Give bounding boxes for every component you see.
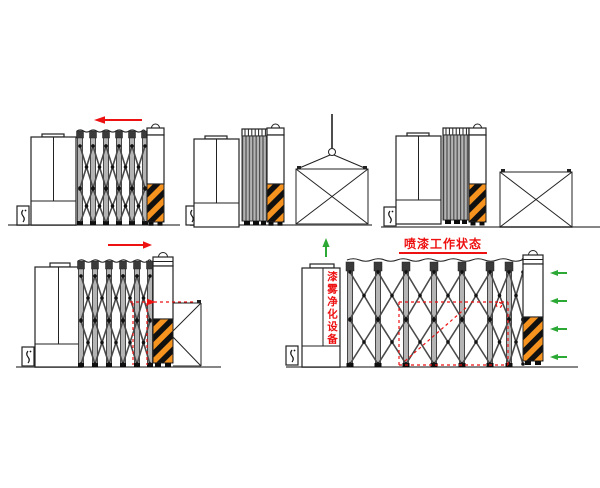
pivot-joint — [117, 187, 121, 191]
green-arrow-left-icon — [550, 326, 567, 332]
state-booth-extending — [22, 241, 201, 367]
pivot-joint — [107, 362, 111, 366]
column-cap — [430, 262, 438, 271]
pivot-joint — [91, 221, 95, 225]
pivot-joint — [78, 221, 82, 225]
pivot-joint — [86, 341, 90, 345]
pivot-joint — [107, 274, 111, 278]
pivot-joint — [142, 296, 146, 300]
pivot-joint — [143, 221, 147, 225]
pivot-joint — [514, 294, 518, 298]
column-cap — [77, 131, 84, 138]
pivot-joint — [135, 274, 139, 278]
green-arrow-left-icon — [550, 298, 567, 304]
scissor-booth-extended — [78, 260, 155, 367]
pivot-joint — [404, 270, 408, 274]
pivot-joint — [111, 165, 115, 169]
pivot-joint — [137, 165, 141, 169]
pivot-joint — [78, 144, 82, 148]
pivot-joint — [418, 340, 422, 344]
pivot-joint — [148, 319, 152, 323]
column-cap — [106, 261, 113, 269]
pivot-joint — [130, 144, 134, 148]
pivot-joint — [85, 204, 89, 208]
pivot-joint — [104, 144, 108, 148]
column-cap — [134, 261, 141, 269]
pivot-joint — [98, 165, 102, 169]
state-folded-crate-stored — [384, 124, 572, 227]
state-folded-crane-lift — [186, 114, 368, 227]
crate-corner-lug — [197, 300, 201, 303]
pivot-joint — [148, 274, 152, 278]
pivot-joint — [404, 318, 408, 322]
pivot-joint — [91, 187, 95, 191]
pivot-joint — [474, 340, 478, 344]
pivot-joint — [488, 318, 492, 322]
pivot-joint — [104, 221, 108, 225]
column-cap — [458, 262, 466, 271]
column-cap — [92, 261, 99, 269]
pivot-joint — [142, 341, 146, 345]
pivot-joint — [79, 274, 83, 278]
pivot-joint — [114, 296, 118, 300]
pivot-joint — [498, 294, 502, 298]
column-cap — [346, 262, 354, 271]
pivot-joint — [124, 204, 128, 208]
pivot-joint — [111, 204, 115, 208]
column-cap — [78, 261, 85, 269]
pivot-joint — [521, 362, 525, 366]
pivot-joint — [348, 318, 352, 322]
scissor-booth-extended — [346, 259, 525, 367]
scissor-booth-extended — [77, 130, 149, 225]
green-arrow-up-icon — [322, 238, 329, 257]
pivot-joint — [488, 270, 492, 274]
green-arrow-left-icon — [550, 270, 567, 276]
fabric-top-edge — [78, 260, 154, 263]
column-cap — [90, 131, 97, 138]
pivot-joint — [446, 340, 450, 344]
pivot-joint — [390, 294, 394, 298]
pivot-joint — [121, 274, 125, 278]
pivot-joint — [91, 144, 95, 148]
pivot-joint — [390, 340, 394, 344]
red-arrow-left-icon — [94, 116, 142, 124]
pivot-joint — [135, 319, 139, 323]
diagram-scene — [0, 0, 600, 488]
pivot-joint — [498, 340, 502, 344]
pivot-joint — [474, 294, 478, 298]
pivot-joint — [148, 362, 152, 366]
purifier-label: 漆雾净化设备 — [326, 271, 338, 346]
fabric-top-edge — [77, 130, 148, 132]
pivot-joint — [376, 270, 380, 274]
pivot-joint — [121, 319, 125, 323]
pivot-joint — [514, 340, 518, 344]
pivot-joint — [362, 340, 366, 344]
column-cap — [129, 131, 136, 138]
pivot-joint — [128, 341, 132, 345]
red-arrow-right-icon — [108, 241, 152, 249]
pivot-joint — [124, 165, 128, 169]
pivot-joint — [376, 362, 380, 366]
pivot-joint — [117, 221, 121, 225]
pivot-joint — [130, 221, 134, 225]
pivot-joint — [117, 144, 121, 148]
pivot-joint — [348, 270, 352, 274]
pivot-joint — [93, 362, 97, 366]
pivot-joint — [418, 294, 422, 298]
pivot-joint — [130, 187, 134, 191]
pivot-joint — [376, 318, 380, 322]
pivot-joint — [104, 187, 108, 191]
pivot-joint — [460, 270, 464, 274]
pivot-joint — [79, 319, 83, 323]
pivot-joint — [98, 204, 102, 208]
pivot-joint — [100, 296, 104, 300]
spray-booth-assembly-diagram: 喷漆工作状态 漆雾净化设备 — [0, 0, 600, 488]
column-cap — [120, 261, 127, 269]
pivot-joint — [100, 341, 104, 345]
pivot-joint — [348, 362, 352, 366]
fabric-top-edge — [347, 259, 524, 262]
pivot-joint — [143, 187, 147, 191]
pivot-joint — [137, 204, 141, 208]
pivot-joint — [85, 165, 89, 169]
pivot-joint — [507, 270, 511, 274]
pivot-joint — [86, 296, 90, 300]
pivot-joint — [79, 362, 83, 366]
pivot-joint — [114, 341, 118, 345]
pivot-joint — [446, 294, 450, 298]
column-cap — [402, 262, 410, 271]
state-booth-retracting — [17, 116, 164, 225]
column-cap — [505, 262, 513, 271]
working-state-title: 喷漆工作状态 — [399, 238, 487, 254]
pivot-joint — [107, 319, 111, 323]
crane-hook-icon — [297, 114, 367, 169]
column-cap — [103, 131, 110, 138]
pivot-joint — [121, 362, 125, 366]
pivot-joint — [143, 144, 147, 148]
column-cap — [374, 262, 382, 271]
column-cap — [486, 262, 494, 271]
pivot-joint — [93, 319, 97, 323]
pivot-joint — [432, 270, 436, 274]
pivot-joint — [128, 296, 132, 300]
green-arrow-left-icon — [550, 354, 567, 360]
pivot-joint — [93, 274, 97, 278]
green-airflow-arrows — [550, 270, 567, 360]
pivot-joint — [135, 362, 139, 366]
pivot-joint — [460, 318, 464, 322]
pivot-joint — [78, 187, 82, 191]
column-cap — [116, 131, 123, 138]
crate-partially-hidden — [173, 300, 201, 366]
pivot-joint — [362, 294, 366, 298]
pivot-joint — [432, 318, 436, 322]
